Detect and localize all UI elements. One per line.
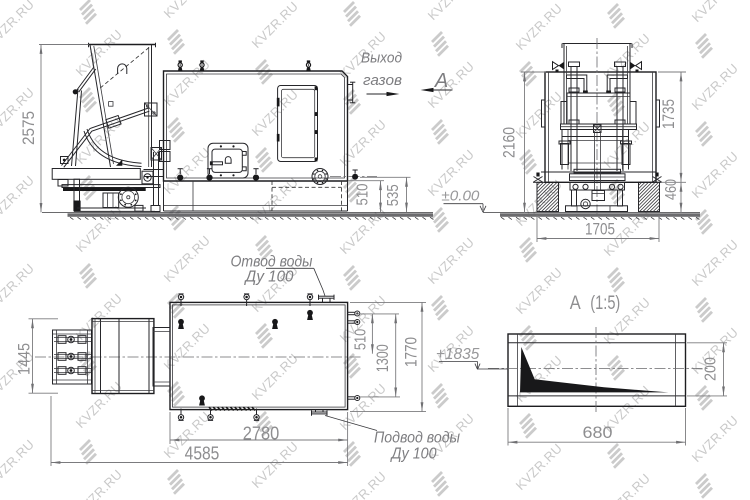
svg-text:1300: 1300 — [373, 344, 392, 372]
svg-text:680: 680 — [583, 423, 613, 442]
svg-text:1735: 1735 — [659, 99, 678, 129]
svg-text:(1:5): (1:5) — [590, 293, 620, 314]
svg-text:А: А — [570, 293, 581, 314]
svg-text:Ду 100: Ду 100 — [390, 446, 437, 463]
svg-text:510: 510 — [355, 183, 372, 205]
svg-text:2575: 2575 — [19, 111, 38, 145]
svg-text:+1835: +1835 — [436, 346, 480, 363]
svg-text:200: 200 — [703, 357, 720, 381]
svg-text:1705: 1705 — [585, 220, 615, 239]
svg-text:460: 460 — [663, 179, 680, 200]
svg-text:1445: 1445 — [15, 343, 34, 375]
svg-text:1770: 1770 — [402, 337, 421, 367]
svg-text:2780: 2780 — [243, 423, 280, 443]
svg-text:Ду 100: Ду 100 — [244, 269, 294, 286]
svg-text:535: 535 — [385, 184, 402, 206]
svg-text:Подвод воды: Подвод воды — [374, 430, 461, 447]
svg-text:±0.00: ±0.00 — [441, 187, 480, 204]
svg-text:510: 510 — [352, 329, 369, 351]
svg-text:4585: 4585 — [185, 443, 220, 463]
svg-text:2160: 2160 — [500, 127, 519, 158]
svg-text:газов: газов — [363, 72, 402, 89]
svg-text:А: А — [434, 70, 448, 92]
svg-text:Выход: Выход — [361, 50, 402, 67]
